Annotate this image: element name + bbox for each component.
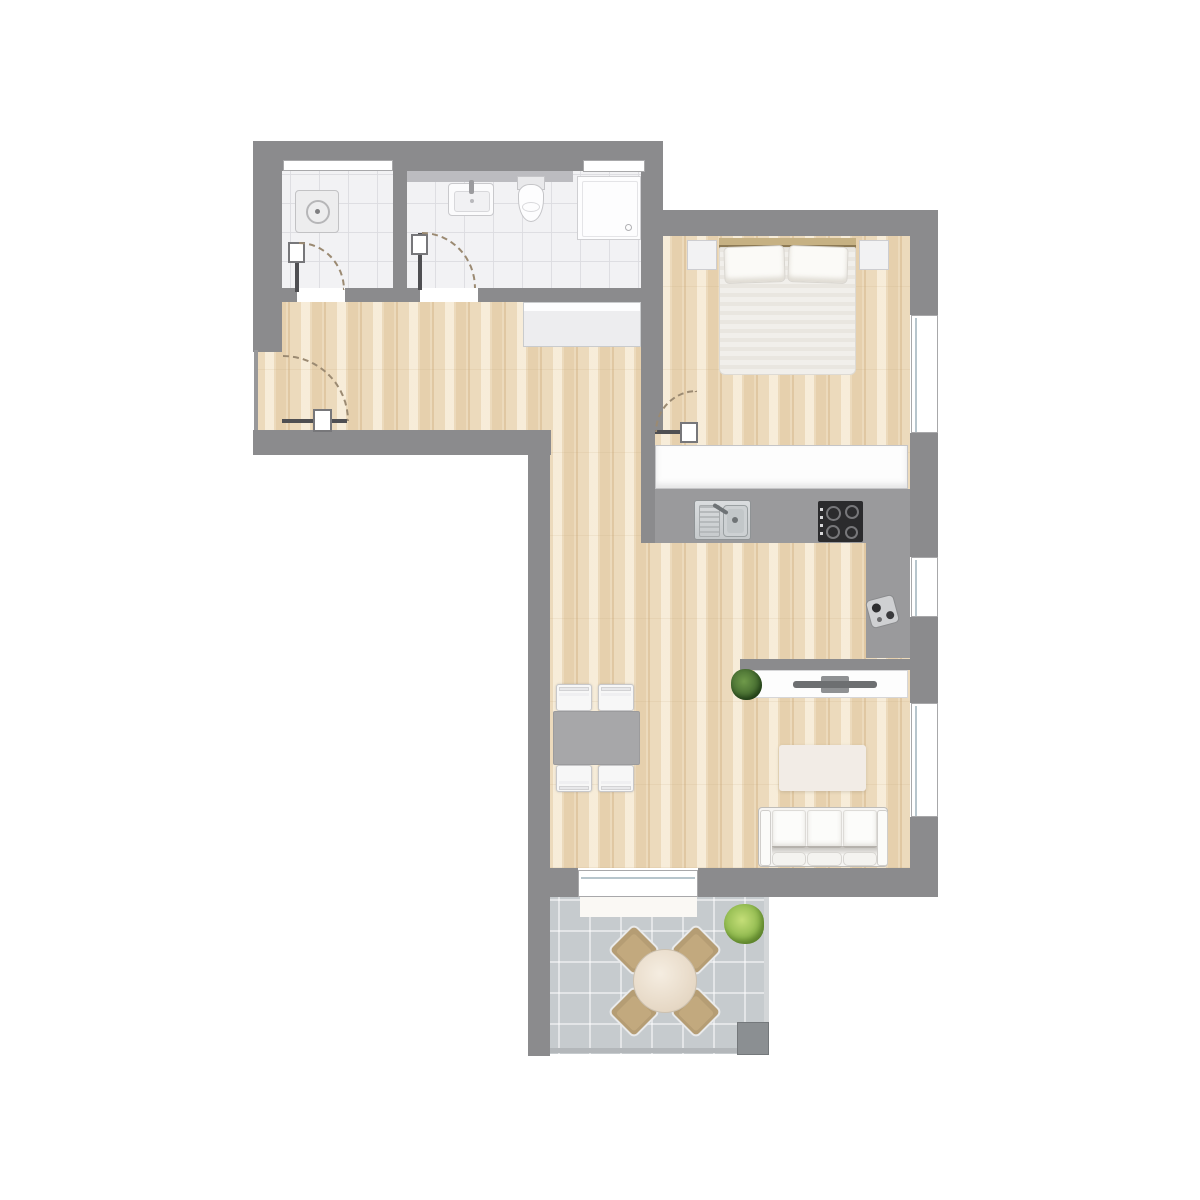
coffee-dot-1: [871, 602, 882, 613]
sink-drain-dot: [732, 517, 738, 523]
sofa-seat-1: [772, 810, 806, 848]
sofa-back-2: [807, 852, 842, 866]
nightstand-left: [687, 240, 717, 270]
sink-faucet: [469, 180, 474, 194]
terrace-parapet-left: [528, 868, 550, 1056]
double-bed: [719, 238, 856, 375]
dining-chair-4: [598, 765, 634, 792]
dining-table: [553, 711, 640, 765]
bathroom-vanity-counter: [407, 171, 573, 182]
potted-plant-living: [731, 669, 762, 700]
dining-chair-1: [556, 684, 592, 711]
glass-pane: [915, 318, 917, 432]
window-utility: [283, 160, 393, 171]
dining-chair-2: [598, 684, 634, 711]
shower-drain: [625, 224, 632, 231]
wall-right-3: [910, 617, 938, 703]
sink-drainboard: [699, 505, 720, 537]
terrace-plant: [724, 904, 764, 944]
sink-drain: [470, 199, 474, 203]
terrace-round-table: [633, 949, 697, 1013]
chair-slat-2: [559, 781, 589, 784]
cooktop-knobs: [820, 508, 823, 536]
bathroom-sink: [448, 183, 494, 216]
coffee-dot-2: [885, 610, 895, 620]
wall-bath-south-c: [478, 288, 641, 302]
toilet: [517, 176, 545, 223]
tv-partition-wall: [740, 659, 910, 670]
bed-pillow-left: [723, 245, 785, 284]
wardrobe-front-strip: [524, 303, 640, 311]
window-bedroom: [911, 315, 938, 433]
glass-pane: [915, 706, 917, 816]
cooktop: [818, 501, 863, 542]
wall-left-thin: [254, 350, 258, 432]
wall-kitchen-stub: [641, 433, 655, 543]
nightstand-right: [859, 240, 889, 270]
sofa-arm-right: [877, 810, 888, 866]
shower: [577, 176, 641, 240]
burner-3: [826, 525, 840, 539]
dining-chair-3: [556, 765, 592, 792]
kitchen-sink: [694, 500, 751, 540]
sofa-seat-2: [807, 810, 842, 848]
terrace-pillar: [737, 1022, 769, 1055]
bedroom-wardrobe-row: [655, 445, 908, 489]
glass-pane: [915, 560, 917, 616]
sofa-seat-3: [843, 810, 877, 848]
coffee-dot-3: [876, 616, 882, 622]
window-kitchen: [911, 557, 938, 617]
burner-2: [845, 505, 859, 519]
wall-bath-south-b: [345, 288, 420, 302]
chair-back-slat: [601, 786, 631, 790]
sofa: [758, 807, 888, 867]
tv-screen: [793, 681, 877, 688]
wall-mid-vertical: [641, 141, 663, 433]
washing-machine: [295, 190, 339, 233]
burner-4: [845, 526, 858, 539]
sofa-arm-left: [760, 810, 771, 866]
wall-left: [253, 141, 282, 352]
wall-right-2: [910, 433, 938, 557]
wall-bedroom-top: [641, 210, 938, 236]
washer-center-dot: [315, 209, 320, 214]
glass-pane: [581, 877, 695, 879]
floor-plan-canvas: [0, 0, 1200, 1200]
wall-living-left: [528, 433, 550, 868]
chair-back-slat: [601, 687, 631, 691]
wall-hall-bottom: [253, 430, 551, 455]
toilet-seat-line: [522, 202, 540, 212]
terrace-door: [578, 870, 698, 897]
rug: [779, 745, 866, 791]
window-bathroom: [583, 160, 645, 172]
tv: [793, 675, 877, 694]
chair-slat-2: [601, 693, 631, 696]
bed-pillow-right: [787, 245, 848, 284]
burner-1: [826, 506, 841, 521]
sofa-back-3: [843, 852, 877, 866]
chair-back-slat: [559, 687, 589, 691]
wall-utility-bath-divider: [393, 171, 407, 288]
wall-right-1: [910, 210, 938, 315]
chair-slat-2: [601, 781, 631, 784]
chair-back-slat: [559, 786, 589, 790]
hallway-wardrobe: [523, 302, 641, 347]
terrace-door-stoop: [580, 897, 697, 917]
sofa-back-1: [772, 852, 806, 866]
chair-slat-2: [559, 693, 589, 696]
wall-south-b: [698, 868, 938, 897]
window-living-room: [911, 703, 938, 817]
